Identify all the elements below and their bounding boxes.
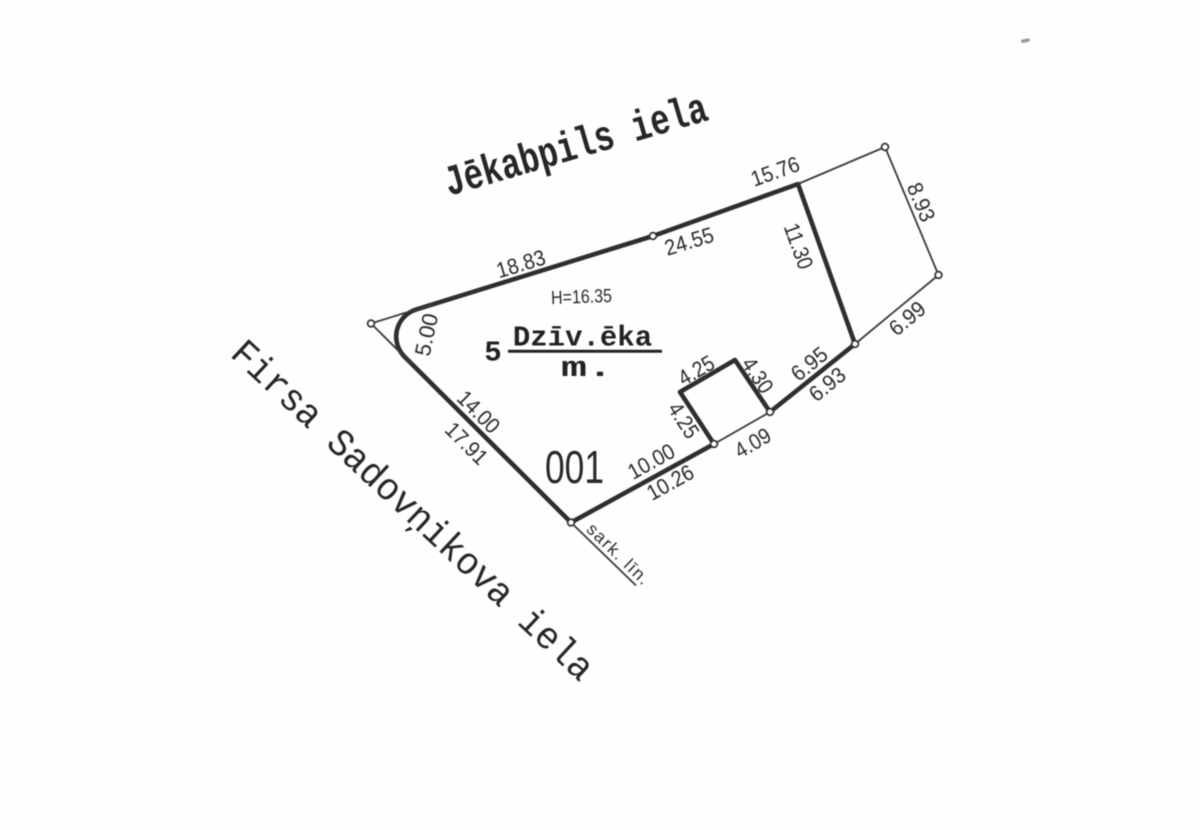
- svg-text:5: 5: [484, 337, 501, 370]
- svg-text:H=16.35: H=16.35: [551, 286, 613, 309]
- svg-text:001: 001: [545, 441, 604, 493]
- svg-text:Dzīv.ēka: Dzīv.ēka: [513, 322, 652, 355]
- svg-text:m.: m.: [561, 352, 613, 385]
